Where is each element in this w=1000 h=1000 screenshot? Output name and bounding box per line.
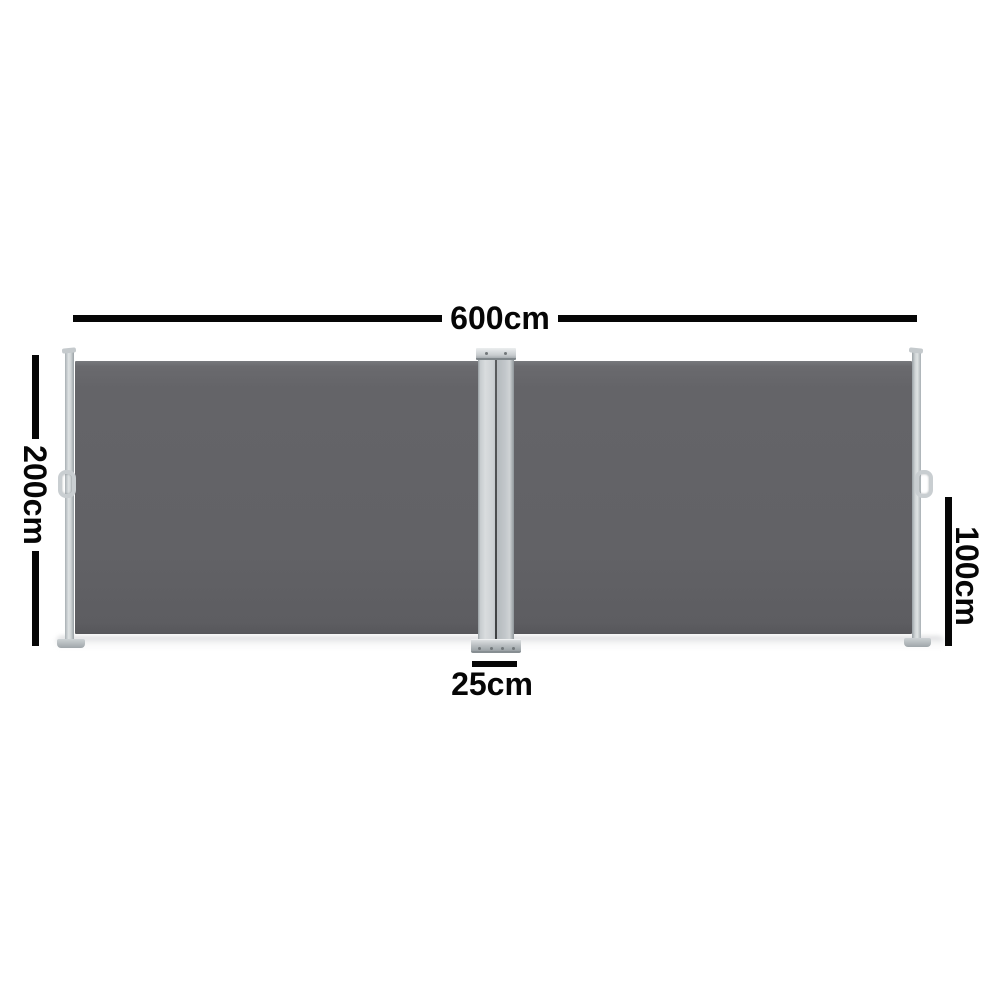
screw-dot: [504, 352, 507, 355]
left-height-dimension-label: 200cm: [17, 440, 53, 550]
product-dimension-diagram: 600cm 200cm 100cm 25cm: [0, 0, 1000, 1000]
left-height-dimension-line-bottom: [32, 551, 39, 646]
screw-dot: [501, 647, 504, 650]
right-height-dimension-label: 100cm: [949, 521, 985, 631]
screw-dot: [485, 352, 488, 355]
center-post-seam: [495, 359, 497, 639]
right-pole-cap: [909, 347, 923, 353]
left-height-dimension-line-top: [32, 355, 39, 439]
screw-dot: [478, 647, 481, 650]
width-dimension-line-right: [558, 315, 917, 322]
width-dimension-label: 600cm: [441, 299, 559, 337]
right-pull-handle: [915, 470, 933, 498]
left-pole-cap: [62, 347, 76, 353]
screw-dot: [512, 647, 515, 650]
center-post-base-plate: [471, 639, 521, 653]
left-pull-handle: [58, 470, 76, 498]
left-pole-foot: [57, 639, 85, 648]
width-dimension-line-left: [73, 315, 442, 322]
center-post-cap: [476, 348, 516, 360]
base-width-dimension-label: 25cm: [432, 667, 552, 701]
right-pole-foot: [904, 638, 931, 647]
screw-dot: [490, 647, 493, 650]
center-cassette-post: [478, 359, 514, 639]
